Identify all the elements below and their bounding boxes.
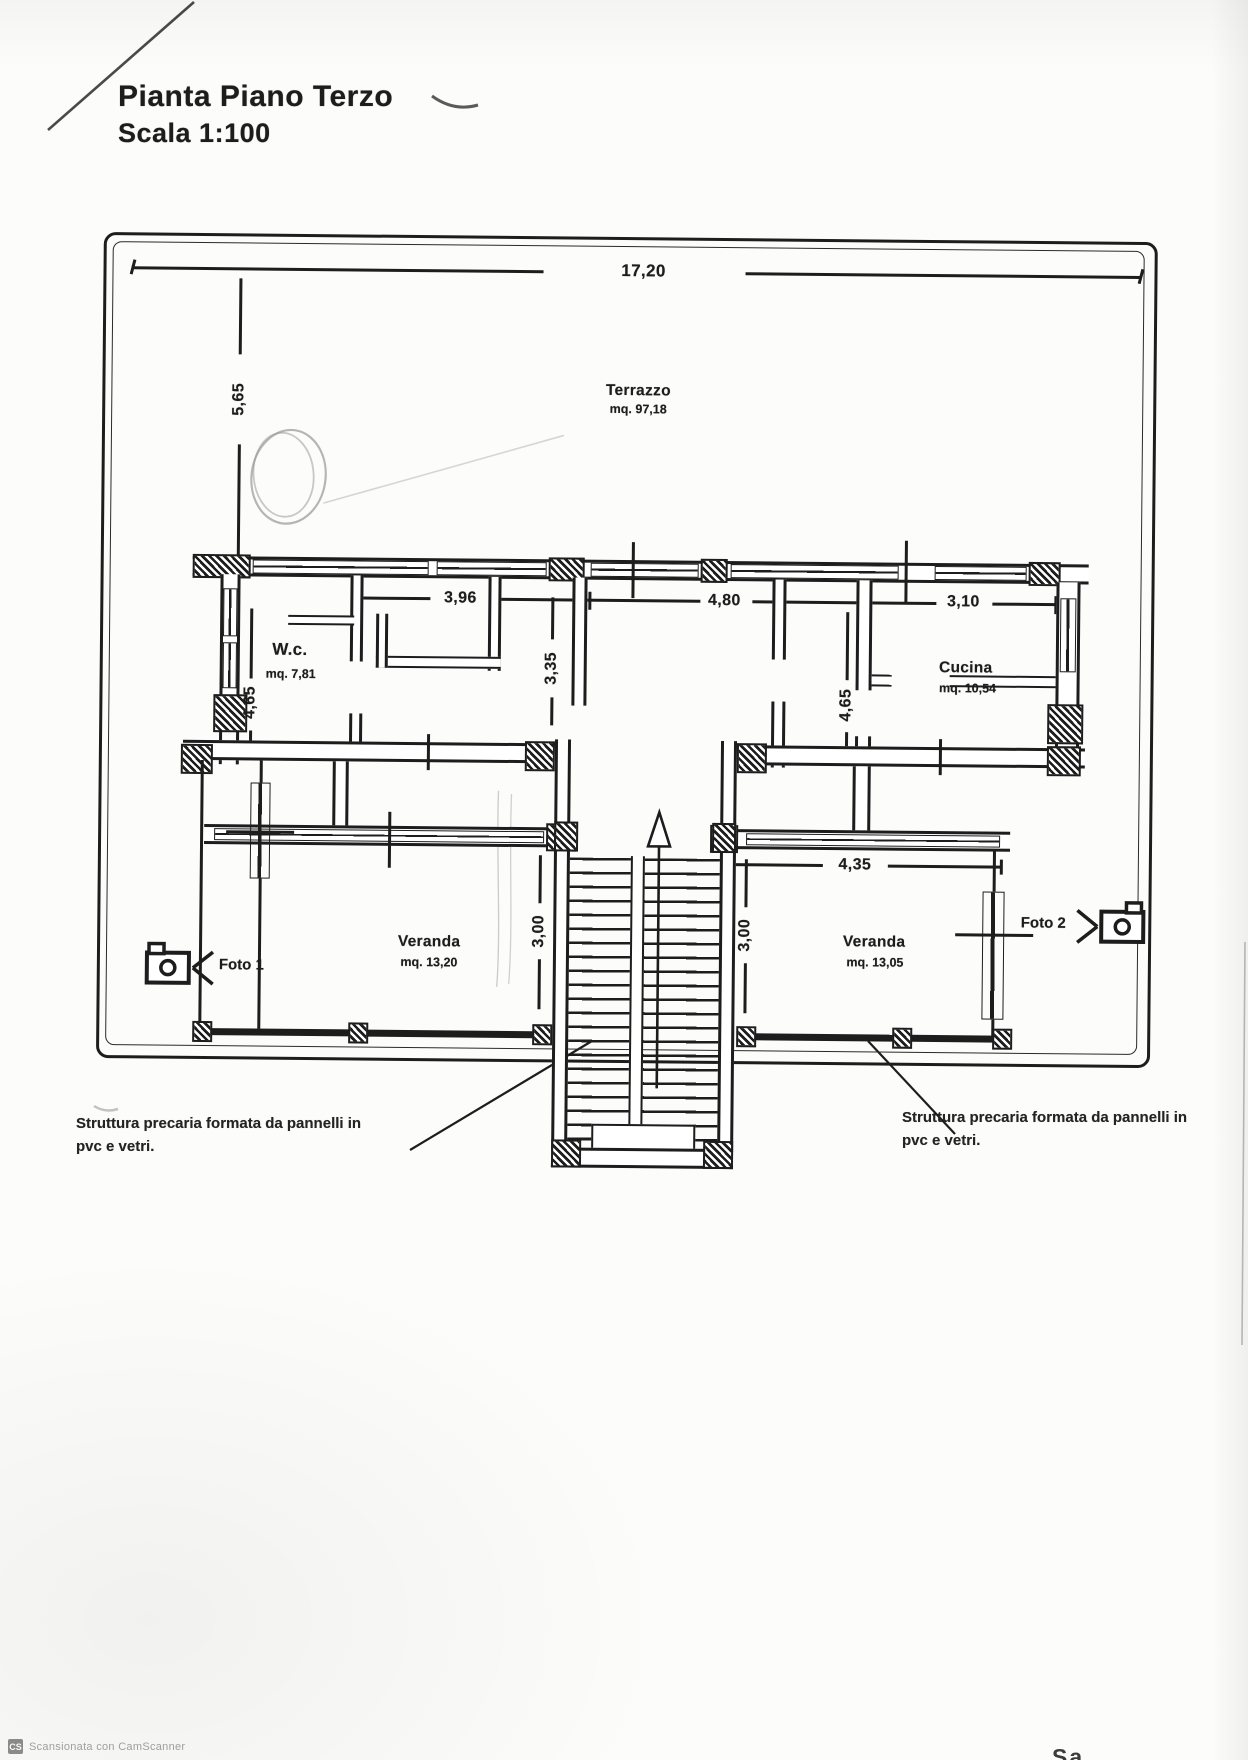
window-symbol [223, 642, 237, 688]
wall-tick [427, 734, 430, 770]
scanner-watermark: CS Scansionata con CamScanner [8, 1739, 185, 1754]
dimension-room-center-width: 4,80 [708, 592, 741, 610]
wall-hatch-block [992, 1029, 1012, 1050]
wall-cucina-left [856, 580, 873, 690]
wall-panel-stub [260, 761, 263, 783]
window-symbol [1060, 598, 1077, 672]
window-symbol [746, 833, 1000, 847]
annotation-right-line2: pvc e vetri. [902, 1129, 1187, 1152]
veranda-front-wall [210, 1028, 350, 1036]
window-symbol [437, 561, 547, 576]
dimension-terrace-depth: 5,65 [230, 383, 248, 416]
wall-notch-stub [376, 614, 389, 668]
wall-hatch-block [701, 559, 728, 583]
wall-hatch-block [892, 1028, 912, 1049]
dimension-line [743, 963, 746, 1013]
dimension-tick [588, 592, 591, 610]
scanner-watermark-text: Scansionata con CamScanner [29, 1741, 185, 1753]
photo-label-foto1: Foto 1 [219, 956, 264, 973]
annotation-left-line1: Struttura precaria formata da pannelli i… [76, 1112, 361, 1135]
wall-hatch-block [737, 743, 767, 773]
wall-stub-right [852, 766, 871, 834]
dimension-line [744, 859, 747, 907]
page-edge-text-fragment: Sa [1052, 1744, 1122, 1760]
wall-hatch-block [703, 1141, 733, 1169]
window-symbol [591, 563, 699, 578]
room-area-veranda-right: mq. 13,05 [846, 955, 903, 970]
photo-label-foto2: Foto 2 [1021, 914, 1066, 931]
window-symbol [731, 564, 899, 580]
annotation-left: Struttura precaria formata da pannelli i… [76, 1112, 361, 1159]
wall-hatch-block [532, 1024, 552, 1045]
wall-hatch-block [1047, 746, 1081, 776]
wall-bottom-right [765, 745, 1085, 768]
dimension-line [551, 597, 554, 639]
wall-hatch-block [525, 741, 555, 771]
room-label-wc: W.c. [272, 640, 307, 660]
veranda-front-wall [910, 1035, 994, 1043]
wall-hatch-block [554, 821, 578, 851]
room-area-wc: mq. 7,81 [266, 667, 316, 681]
wall-hall-left [772, 579, 787, 659]
veranda-front-wall [754, 1033, 894, 1041]
window-symbol [253, 559, 429, 575]
wall-hatch-block [1047, 704, 1083, 744]
dimension-tick [1000, 860, 1003, 875]
dimension-line [537, 959, 540, 1009]
wall-panel-stub [993, 850, 996, 892]
dimension-veranda-right-width: 4,35 [838, 856, 871, 874]
wall-stub-left [332, 761, 349, 829]
dimension-line [550, 697, 553, 725]
wall-tick [939, 739, 942, 775]
dimension-room-left-depth: 3,35 [543, 652, 561, 685]
room-label-veranda-left: Veranda [398, 933, 461, 952]
wall-hatch-block [712, 823, 736, 853]
room-label-terrazzo: Terrazzo [606, 382, 671, 401]
room-area-veranda-left: mq. 13,20 [400, 955, 457, 970]
stair-center-rail [628, 856, 645, 1146]
window-symbol [981, 891, 1004, 1019]
wall-tick [388, 812, 391, 868]
wall-notch-horizontal [376, 656, 501, 669]
room-area-terrazzo: mq. 97,18 [610, 402, 667, 417]
dimension-veranda-right-depth: 3,00 [736, 919, 754, 952]
room-label-cucina: Cucina [939, 659, 993, 678]
room-label-veranda-right: Veranda [843, 933, 906, 952]
wall-hatch-block [736, 1026, 756, 1047]
dimension-room-left-width: 3,96 [444, 589, 477, 607]
room-area-cucina: mq. 10,54 [939, 681, 996, 696]
stair-wall-right [717, 741, 737, 1169]
wall-wc-stub [288, 615, 354, 626]
window-symbol [935, 566, 1027, 581]
camscanner-logo-icon: CS [8, 1739, 23, 1754]
wall-cucina-bottom [872, 674, 892, 686]
dimension-wc-depth: 4,65 [241, 686, 259, 719]
scanned-floor-plan-page: Pianta Piano Terzo Scala 1:100 17,20 5,6… [0, 0, 1248, 1760]
annotation-left-line2: pvc e vetri. [76, 1135, 361, 1158]
dimension-line [538, 855, 541, 903]
annotation-right-line1: Struttura precaria formata da pannelli i… [902, 1106, 1187, 1129]
dimension-cucina-width: 3,10 [947, 593, 980, 611]
dimension-hall-depth: 4,65 [837, 689, 855, 722]
floor-plan-drawing: 17,20 5,65 Terrazzo mq. 97,18 [0, 0, 1248, 1216]
wall-hatch-block [551, 1139, 581, 1167]
wall-hatch-block [181, 744, 213, 774]
wall-hatch-block [192, 1021, 212, 1042]
dimension-terrace-width: 17,20 [621, 261, 666, 281]
wall-bottom-left [183, 740, 527, 763]
wall-hatch-block [348, 1022, 368, 1043]
window-symbol [223, 588, 237, 636]
dimension-veranda-left-depth: 3,00 [530, 915, 548, 948]
wall-partition-center [571, 578, 587, 706]
annotation-right: Struttura precaria formata da pannelli i… [902, 1106, 1187, 1153]
